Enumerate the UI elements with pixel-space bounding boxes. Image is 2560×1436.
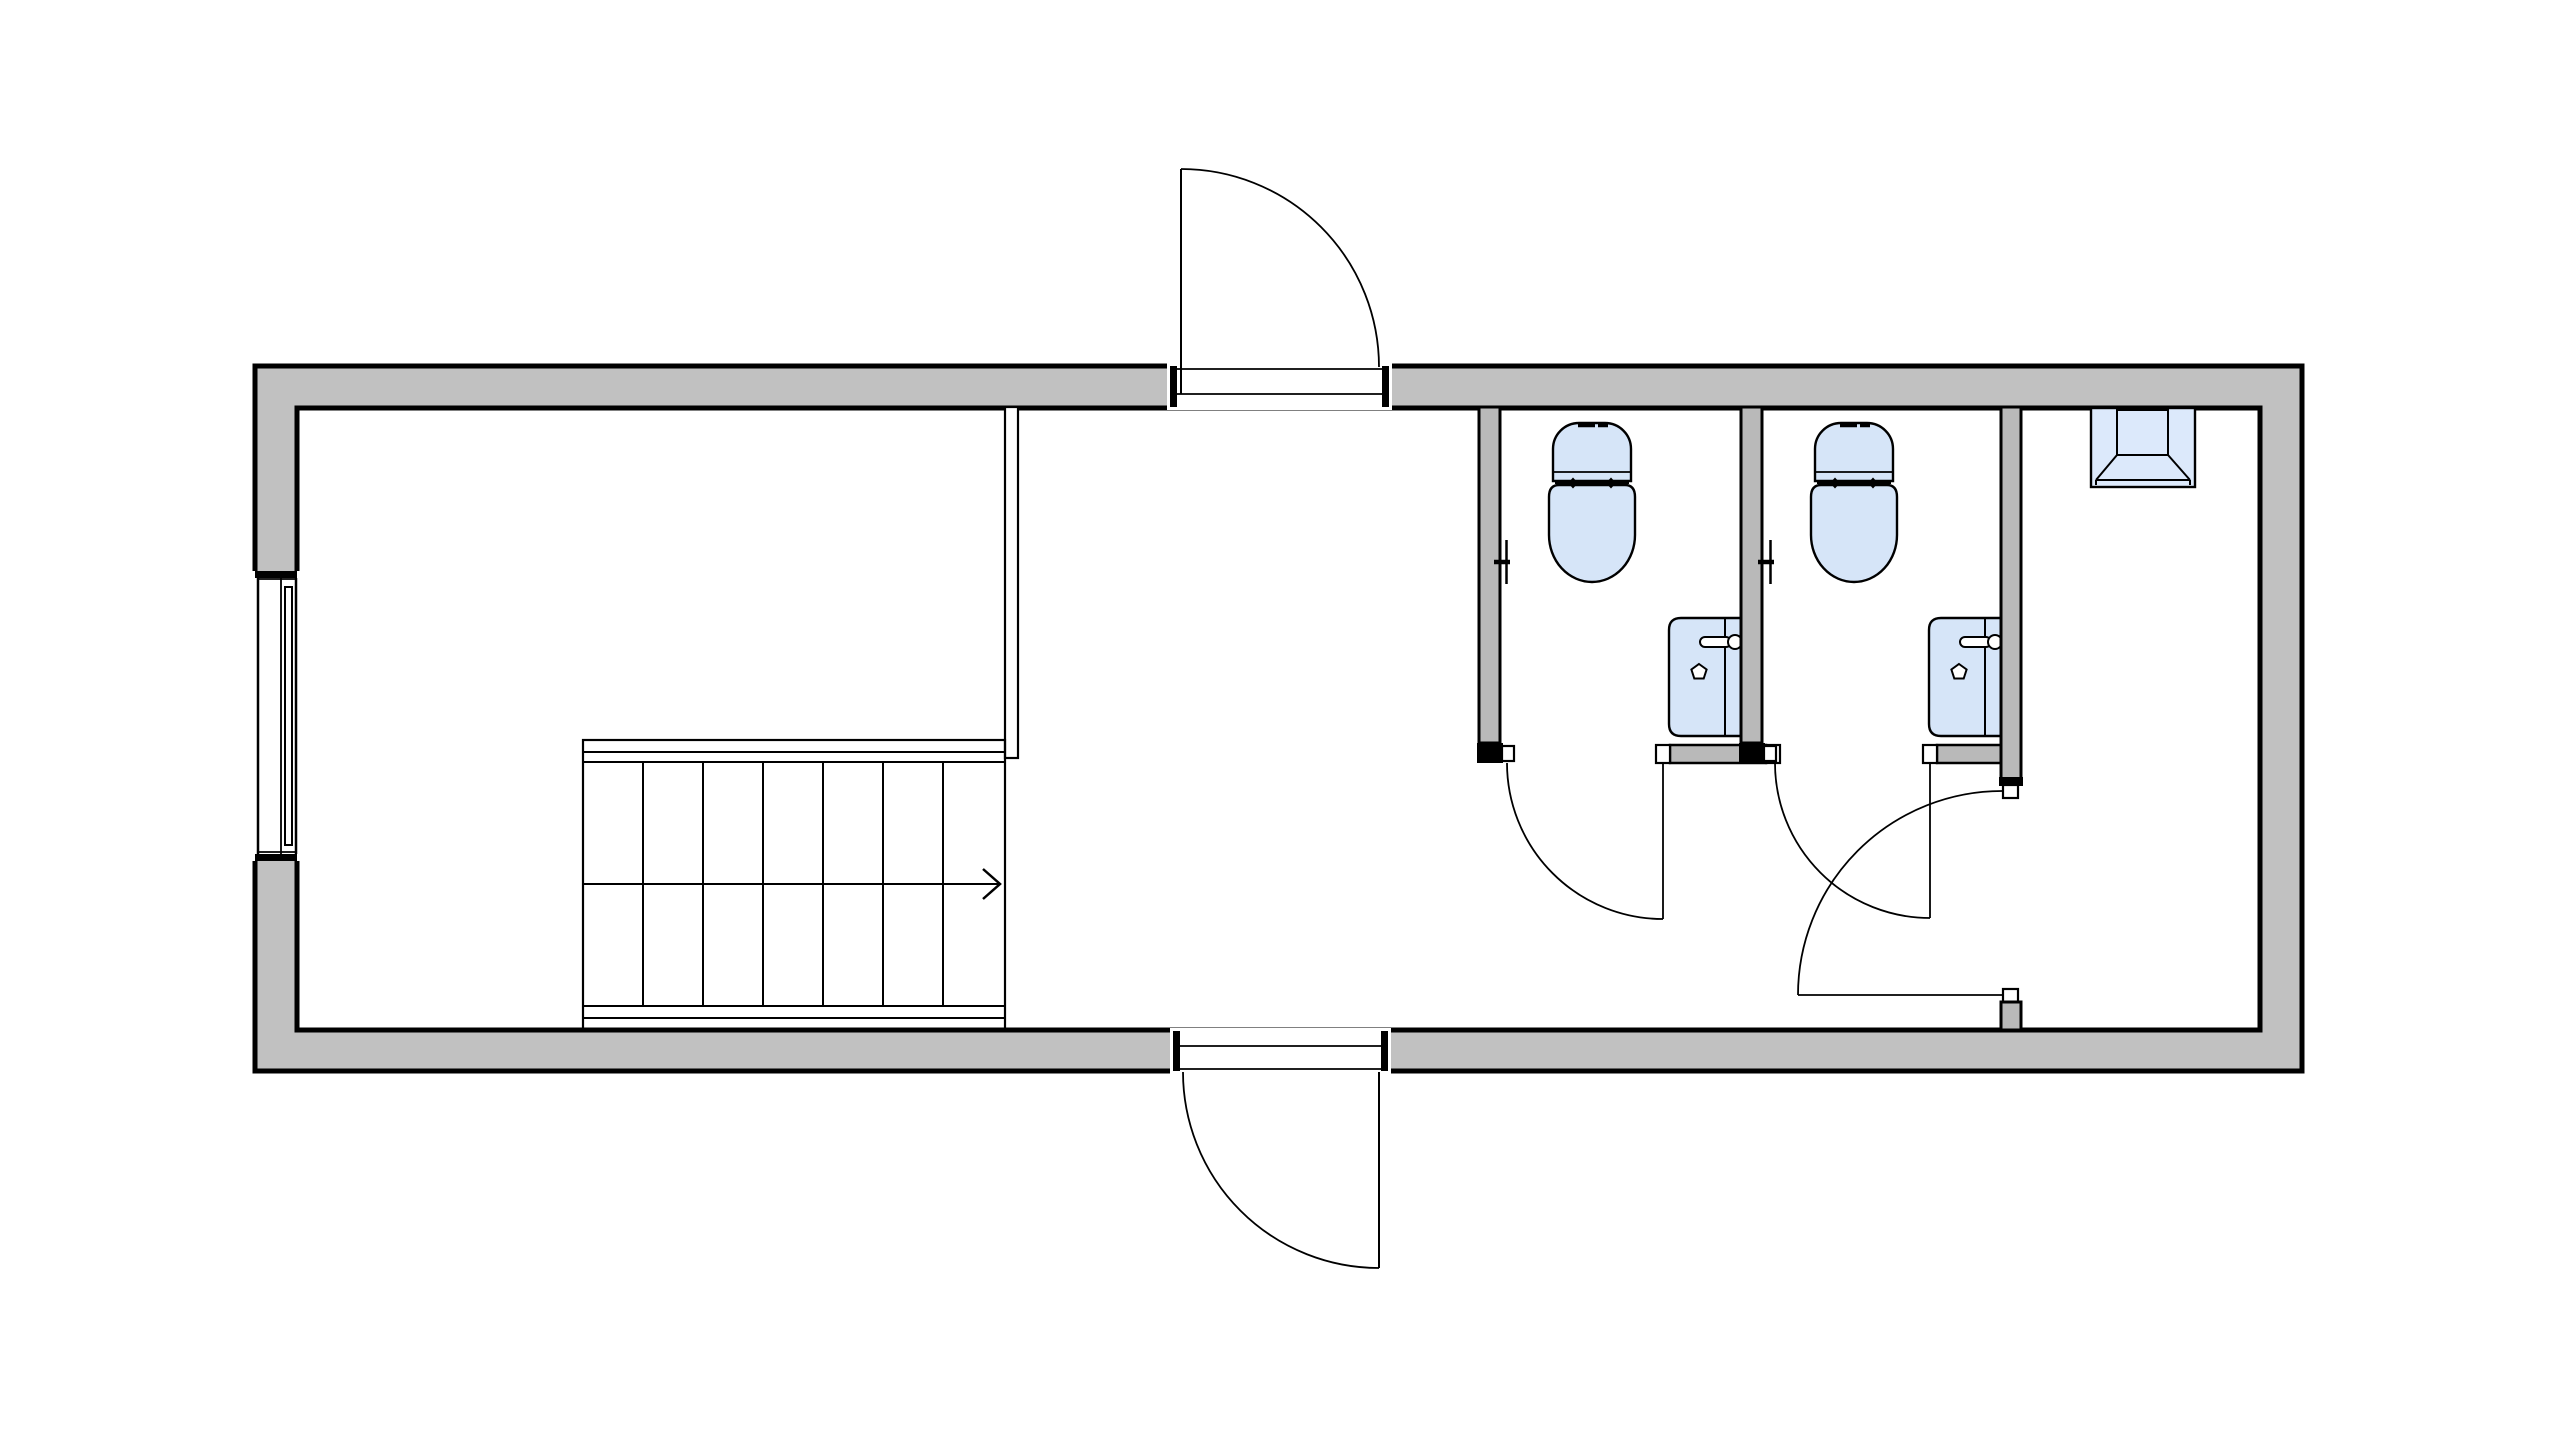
- toilet-2: [1811, 423, 1897, 582]
- skylight: [2091, 408, 2195, 487]
- stub-jamb-left: [1923, 745, 1937, 763]
- wc-cubicle-1: [1477, 407, 1780, 919]
- right-room-door-swing-arc: [1798, 791, 2002, 995]
- floor-plan-drawing: [0, 0, 2560, 1436]
- floor-plan-page: [0, 0, 2560, 1436]
- partition-end-cap: [1739, 743, 1765, 763]
- sink-2: [1929, 618, 2002, 736]
- door-jamb-cap-left: [1173, 1031, 1180, 1071]
- staircase: [583, 740, 1005, 1030]
- door-jamb-cap-right: [1381, 1031, 1388, 1071]
- door-swing-arc: [1183, 1072, 1379, 1268]
- right-room-partition-lower-stub: [2001, 1002, 2021, 1030]
- door-opening: [1170, 1028, 1391, 1074]
- door-opening: [1167, 363, 1392, 410]
- stair-bottom-stringer-lines: [583, 1006, 1005, 1018]
- sink-1: [1669, 618, 1742, 736]
- wc2-door-swing-arc: [1775, 763, 1930, 918]
- north-entry-door: [1167, 169, 1392, 410]
- wc-cubicle-2: [1739, 407, 2002, 918]
- corridor-partition-wall: [1005, 407, 1018, 758]
- door-jamb-block-upper: [2003, 785, 2018, 798]
- door-jamb-cap-left: [1170, 366, 1177, 407]
- door-jamb-block-lower: [2003, 989, 2018, 1002]
- toilet-1: [1549, 423, 1635, 582]
- stub-jamb-left: [1656, 745, 1670, 763]
- door-jamb-block: [1764, 746, 1776, 761]
- door-jamb-cap-right: [1382, 366, 1389, 407]
- window-cap-bottom: [255, 854, 297, 861]
- window-cap-top: [255, 571, 297, 578]
- window-glazing: [285, 587, 292, 845]
- cubicle-partition-wall-2: [1741, 407, 1762, 743]
- cubicle-partition-wall-1: [1479, 407, 1500, 743]
- partition-end-cap: [1477, 743, 1503, 763]
- door-swing-arc: [1181, 169, 1379, 367]
- door-jamb-block: [1502, 746, 1514, 761]
- wc1-door-swing-arc: [1507, 763, 1663, 919]
- south-entry-door: [1170, 1028, 1391, 1268]
- stair-top-stringer-lines: [583, 752, 1005, 762]
- sink-stub-wall-2: [1937, 745, 2001, 763]
- right-room-partition-upper: [2001, 407, 2021, 779]
- west-window: [250, 571, 304, 861]
